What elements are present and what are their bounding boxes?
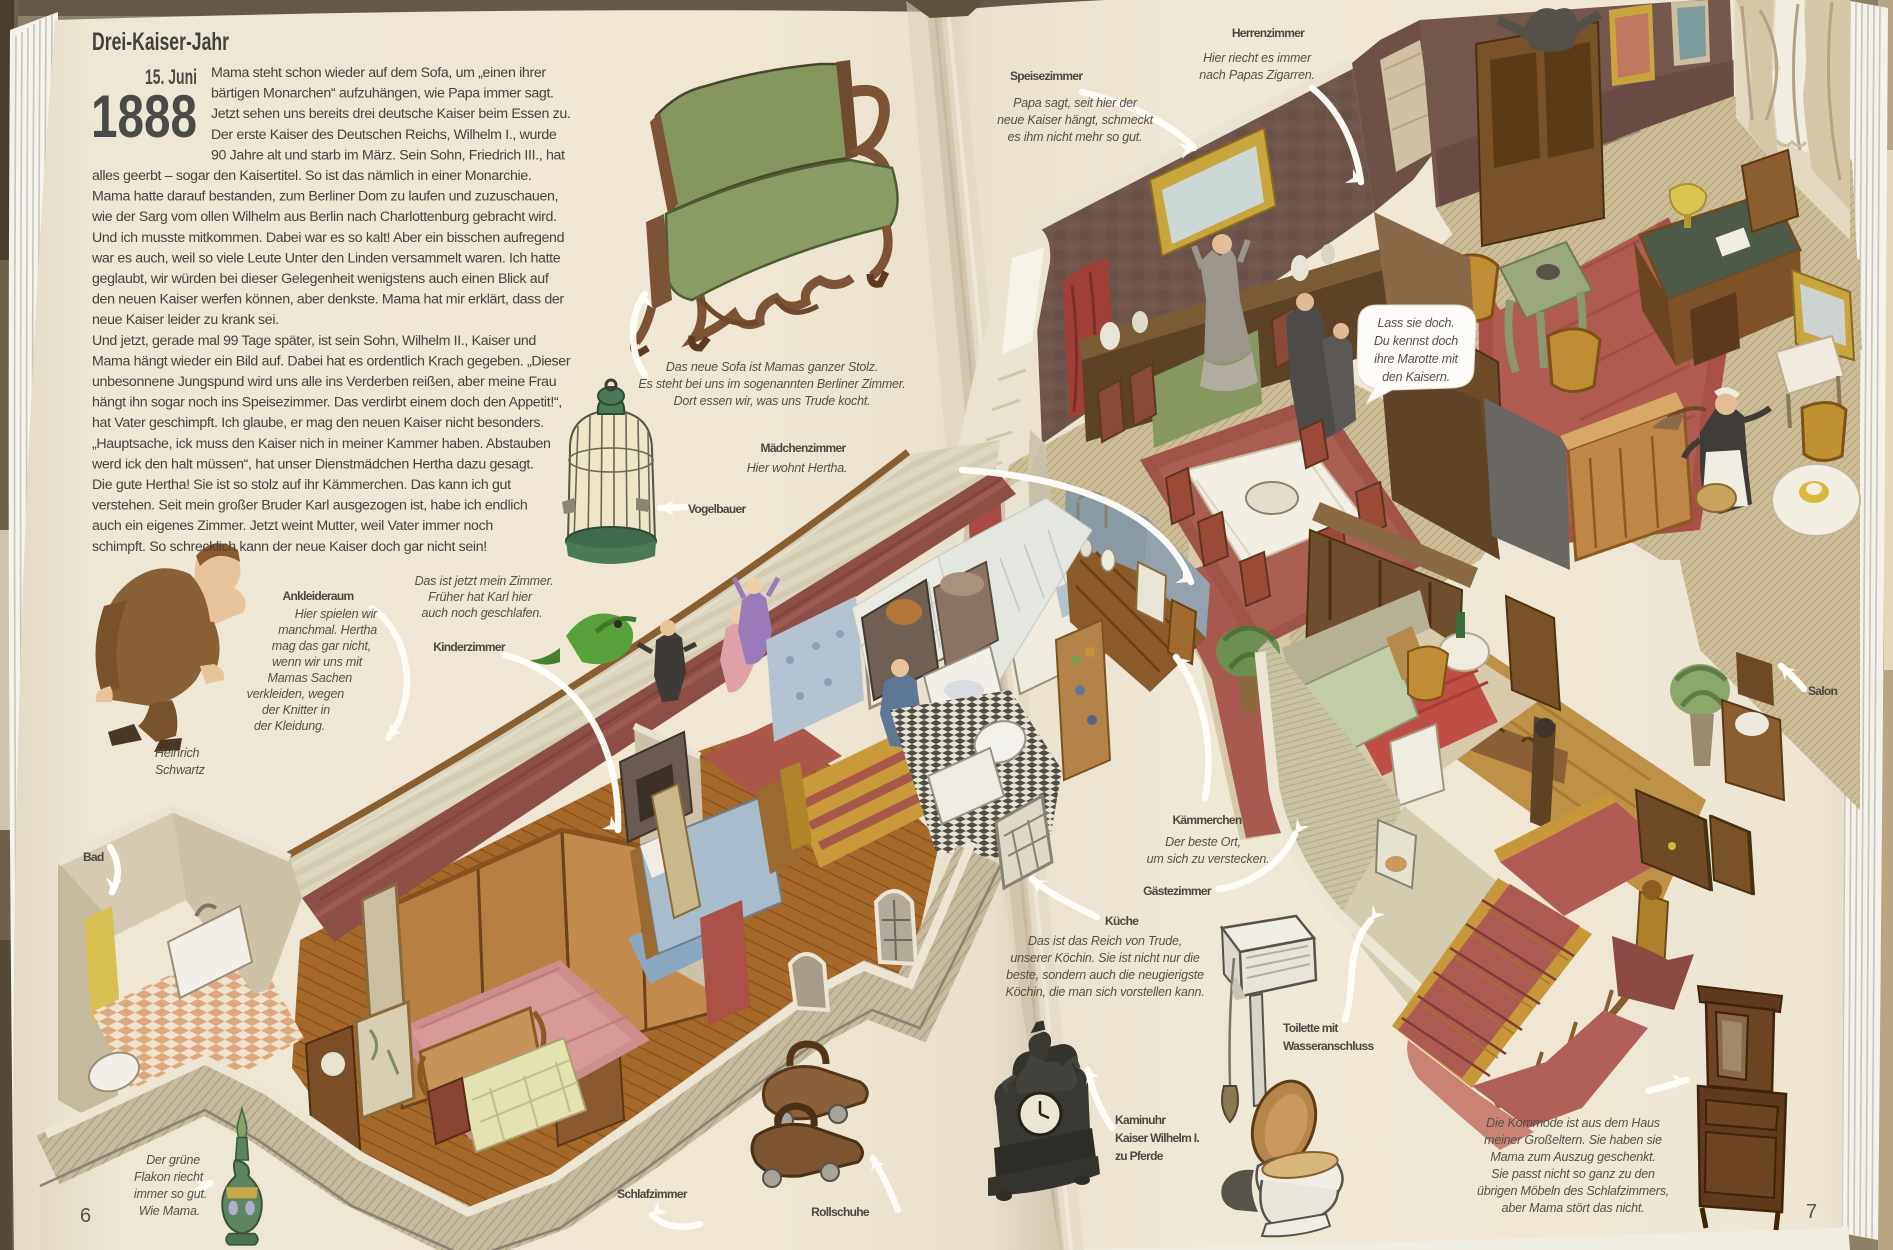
- svg-text:Hier spielen wir: Hier spielen wir: [295, 607, 378, 621]
- svg-text:wie der Sarg vom ollen Wilhelm: wie der Sarg vom ollen Wilhelm aus Berli…: [91, 209, 557, 225]
- svg-text:Vogelbauer: Vogelbauer: [688, 502, 746, 516]
- svg-text:Hier wohnt Hertha.: Hier wohnt Hertha.: [747, 461, 848, 475]
- svg-text:Rollschuhe: Rollschuhe: [811, 1205, 870, 1219]
- svg-text:Mama hatte darauf bestanden, z: Mama hatte darauf bestanden, zum Berline…: [92, 189, 558, 205]
- svg-text:auch noch geschlafen.: auch noch geschlafen.: [422, 606, 543, 620]
- svg-text:alles geerbt – sogar den Kaise: alles geerbt – sogar den Kaisertitel. So…: [92, 168, 531, 184]
- svg-text:Köchin, die man sich vorstelle: Köchin, die man sich vorstellen kann.: [1006, 985, 1205, 999]
- svg-text:der Knitter in: der Knitter in: [262, 703, 330, 717]
- svg-text:beste, sondern auch die neugie: beste, sondern auch die neugierigste: [1006, 968, 1204, 982]
- svg-text:geglaubt, wir würden bei diese: geglaubt, wir würden bei dieser Gelegenh…: [92, 271, 549, 287]
- svg-text:es ihm nicht mehr so gut.: es ihm nicht mehr so gut.: [1008, 130, 1143, 144]
- svg-text:Dort essen wir, was uns Trude: Dort essen wir, was uns Trude kocht.: [674, 394, 871, 408]
- svg-text:verstehen. Seit mein großer Br: verstehen. Seit mein großer Bruder Karl …: [92, 498, 527, 514]
- svg-text:Drei-Kaiser-Jahr: Drei-Kaiser-Jahr: [92, 28, 229, 56]
- svg-text:Kaminuhr: Kaminuhr: [1115, 1113, 1166, 1127]
- svg-text:um sich zu verstecken.: um sich zu verstecken.: [1147, 852, 1270, 866]
- svg-text:Herrenzimmer: Herrenzimmer: [1232, 26, 1305, 40]
- svg-text:aber Mama stört das nicht.: aber Mama stört das nicht.: [1502, 1201, 1645, 1215]
- svg-text:Der erste Kaiser des Deutschen: Der erste Kaiser des Deutschen Reichs, W…: [211, 127, 557, 143]
- svg-text:1888: 1888: [91, 83, 197, 150]
- svg-text:den neuen Kaiser werfen können: den neuen Kaiser werfen können, aber den…: [92, 292, 564, 308]
- svg-text:Hier riecht es immer: Hier riecht es immer: [1203, 51, 1312, 65]
- svg-text:Kaiser Wilhelm I.: Kaiser Wilhelm I.: [1115, 1131, 1199, 1145]
- svg-text:Es steht bei uns im sogenannte: Es steht bei uns im sogenannten Berliner…: [638, 377, 905, 391]
- svg-text:Schwartz: Schwartz: [155, 763, 206, 777]
- svg-text:zu Pferde: zu Pferde: [1115, 1149, 1164, 1163]
- svg-text:„Hauptsache, ick muss den Kais: „Hauptsache, ick muss den Kaiser nich in…: [92, 436, 551, 452]
- svg-text:Schlafzimmer: Schlafzimmer: [617, 1187, 688, 1201]
- svg-text:unbesonnene Jungspund wird uns: unbesonnene Jungspund wird uns alle ins …: [92, 374, 556, 390]
- svg-text:hat Vater geschimpft. Ich glau: hat Vater geschimpft. Ich glaube, er mag…: [92, 415, 544, 431]
- svg-text:schimpft. So schrecklich kann: schimpft. So schrecklich kann der neue K…: [92, 539, 487, 555]
- svg-text:nach Papas Zigarren.: nach Papas Zigarren.: [1199, 68, 1315, 82]
- svg-text:Die gute Hertha! Sie ist so st: Die gute Hertha! Sie ist so stolz auf ih…: [92, 477, 511, 493]
- svg-text:Lass sie doch.: Lass sie doch.: [1377, 316, 1454, 330]
- svg-text:werd ick den halt müssen“, hat: werd ick den halt müssen“, hat unser Die…: [91, 456, 534, 472]
- svg-text:Und jetzt, gerade mal 99 Tage: Und jetzt, gerade mal 99 Tage später, is…: [92, 333, 536, 349]
- svg-text:bärtigen Monarchen“ aufzuhänge: bärtigen Monarchen“ aufzuhängen, wie Pap…: [211, 86, 554, 102]
- svg-text:war es auch, weil so viele Leu: war es auch, weil so viele Leute Unter d…: [91, 250, 561, 266]
- svg-text:neue Kaiser hängt, schmeckt: neue Kaiser hängt, schmeckt: [997, 113, 1154, 127]
- svg-text:auch ein eigenes Zimmer. Jetzt: auch ein eigenes Zimmer. Jetzt weint Mut…: [92, 518, 493, 534]
- svg-text:Du kennst doch: Du kennst doch: [1374, 334, 1458, 348]
- svg-text:hängt ihn sogar noch ins Speis: hängt ihn sogar noch ins Speisezimmer. D…: [92, 395, 562, 411]
- svg-text:Mama zum Auszug geschenkt.: Mama zum Auszug geschenkt.: [1490, 1150, 1655, 1164]
- svg-text:Und ich musste mitkommen. Dabe: Und ich musste mitkommen. Dabei war es s…: [92, 230, 564, 246]
- svg-text:Sie passt nicht so ganz zu den: Sie passt nicht so ganz zu den: [1491, 1167, 1655, 1181]
- svg-text:Flakon riecht: Flakon riecht: [134, 1170, 204, 1184]
- svg-text:meiner Großeltern. Sie haben s: meiner Großeltern. Sie haben sie: [1484, 1133, 1662, 1147]
- svg-text:unserer Köchin. Sie ist nicht: unserer Köchin. Sie ist nicht nur die: [1010, 951, 1199, 965]
- svg-text:Salon: Salon: [1808, 684, 1838, 698]
- svg-text:Jetzt sehen uns bereits drei d: Jetzt sehen uns bereits drei deutsche Ka…: [211, 106, 570, 122]
- svg-text:Mama steht schon wieder auf de: Mama steht schon wieder auf dem Sofa, um…: [211, 65, 546, 81]
- svg-text:Ankleideraum: Ankleideraum: [283, 589, 354, 603]
- svg-text:Wasseranschluss: Wasseranschluss: [1283, 1039, 1374, 1053]
- svg-text:neue Kaiser leider zu krank se: neue Kaiser leider zu krank sei.: [92, 312, 279, 328]
- svg-text:den Kaisern.: den Kaisern.: [1382, 370, 1450, 384]
- svg-text:Gästezimmer: Gästezimmer: [1143, 884, 1212, 898]
- svg-text:wenn wir uns mit: wenn wir uns mit: [272, 655, 363, 669]
- svg-text:ihre Marotte mit: ihre Marotte mit: [1374, 352, 1458, 366]
- svg-text:Der grüne: Der grüne: [146, 1153, 200, 1167]
- svg-text:Toilette mit: Toilette mit: [1283, 1021, 1338, 1035]
- svg-text:Das ist jetzt mein Zimmer.: Das ist jetzt mein Zimmer.: [415, 574, 554, 588]
- svg-text:Das ist das Reich von Trude,: Das ist das Reich von Trude,: [1028, 934, 1182, 948]
- svg-text:manchmal. Hertha: manchmal. Hertha: [278, 623, 377, 637]
- svg-text:6: 6: [80, 1205, 91, 1227]
- svg-text:Mädchenzimmer: Mädchenzimmer: [761, 441, 847, 455]
- svg-text:Bad: Bad: [83, 850, 104, 864]
- svg-text:Wie Mama.: Wie Mama.: [139, 1204, 200, 1218]
- svg-text:der Kleidung.: der Kleidung.: [254, 719, 325, 733]
- svg-text:Früher hat Karl hier: Früher hat Karl hier: [428, 590, 533, 604]
- svg-text:Speisezimmer: Speisezimmer: [1010, 69, 1083, 83]
- svg-text:Das neue Sofa ist Mamas ganzer: Das neue Sofa ist Mamas ganzer Stolz.: [666, 360, 878, 374]
- svg-text:verkleiden, wegen: verkleiden, wegen: [247, 687, 345, 701]
- svg-text:Mamas Sachen: Mamas Sachen: [268, 671, 353, 685]
- svg-text:Mama hängt wieder ein Bild auf: Mama hängt wieder ein Bild auf. Dabei ha…: [92, 353, 571, 369]
- svg-text:mag das gar nicht,: mag das gar nicht,: [272, 639, 371, 653]
- svg-text:90 Jahre alt und starb im März: 90 Jahre alt und starb im März. Sein Soh…: [211, 147, 565, 163]
- svg-text:Küche: Küche: [1105, 914, 1139, 928]
- svg-text:übrigen Möbeln des Schlafzimme: übrigen Möbeln des Schlafzimmers,: [1477, 1184, 1669, 1198]
- svg-text:Heinrich: Heinrich: [155, 746, 199, 760]
- svg-text:Der beste Ort,: Der beste Ort,: [1165, 835, 1241, 849]
- svg-text:Die Kommode ist aus dem Haus: Die Kommode ist aus dem Haus: [1486, 1116, 1660, 1130]
- svg-text:Kinderzimmer: Kinderzimmer: [433, 640, 506, 654]
- svg-text:7: 7: [1806, 1201, 1817, 1223]
- svg-text:Kämmerchen: Kämmerchen: [1172, 813, 1241, 827]
- svg-text:immer so gut.: immer so gut.: [134, 1187, 207, 1201]
- svg-text:Papa sagt, seit hier der: Papa sagt, seit hier der: [1013, 96, 1138, 110]
